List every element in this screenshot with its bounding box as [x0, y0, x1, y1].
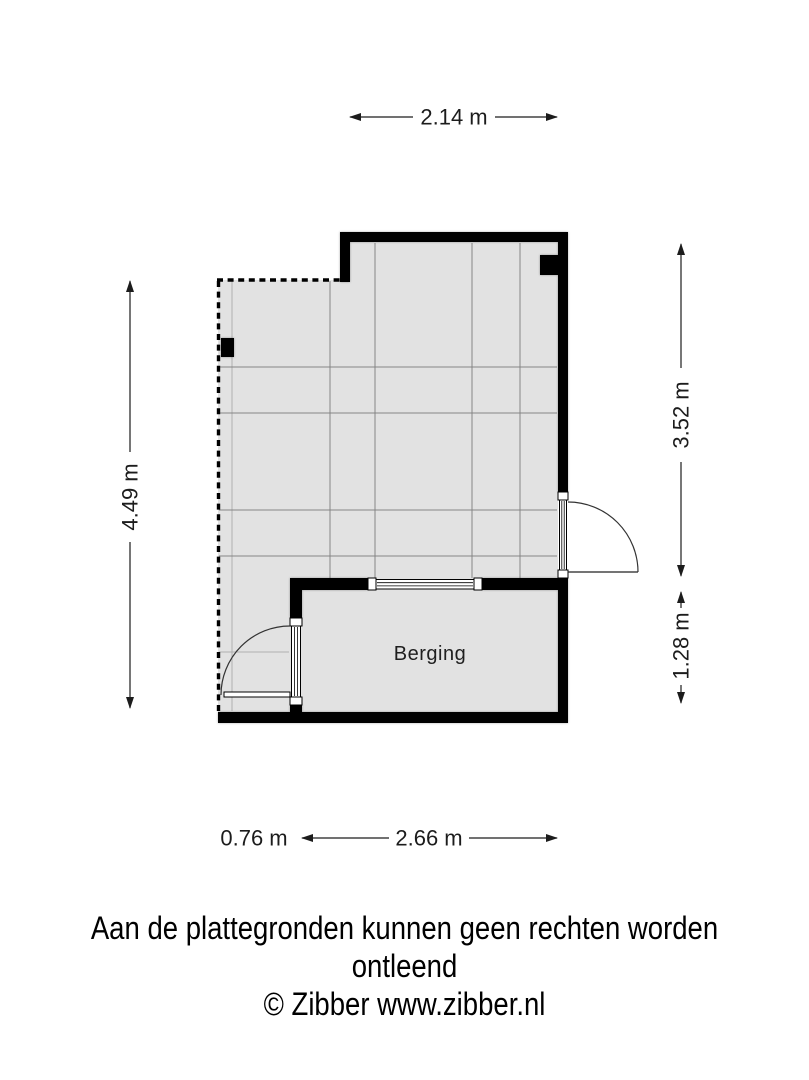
- wall-top: [340, 232, 568, 242]
- door-right-swing-arc: [568, 502, 638, 572]
- dimension-right-upper: 3.52 m: [669, 381, 694, 448]
- wall-top-left-stub: [340, 232, 350, 282]
- berging-window: [368, 578, 482, 590]
- dimension-top: 2.14 m: [420, 105, 487, 130]
- floor-area: [218, 242, 558, 712]
- footer-disclaimer: Aan de plattegronden kunnen geen rechten…: [57, 909, 753, 985]
- door-left-open-leaf: [224, 692, 290, 697]
- berging-wall-top-right: [482, 578, 568, 590]
- door-right: [558, 492, 638, 578]
- wall-bottom: [218, 712, 568, 723]
- dimension-left: 4.49 m: [118, 463, 143, 530]
- footer-copyright: © Zibber www.zibber.nl: [57, 985, 753, 1023]
- berging-wall-left-upper: [290, 578, 302, 618]
- tiled-floor: [218, 242, 558, 712]
- dimension-bottom-left: 0.76 m: [220, 826, 287, 851]
- wall-right-lower: [558, 578, 568, 723]
- dimension-right-lower: 1.28 m: [669, 612, 694, 679]
- floor-plan-page: Berging 2.14 m 4.49 m 3.52 m 1.28 m 0.76…: [0, 0, 809, 1080]
- column: [221, 338, 234, 357]
- pilaster: [540, 255, 558, 275]
- footer: Aan de plattegronden kunnen geen rechten…: [57, 909, 753, 1023]
- wall-right-upper: [558, 232, 568, 492]
- room-label: Berging: [394, 643, 466, 665]
- dimension-bottom-right: 2.66 m: [395, 826, 462, 851]
